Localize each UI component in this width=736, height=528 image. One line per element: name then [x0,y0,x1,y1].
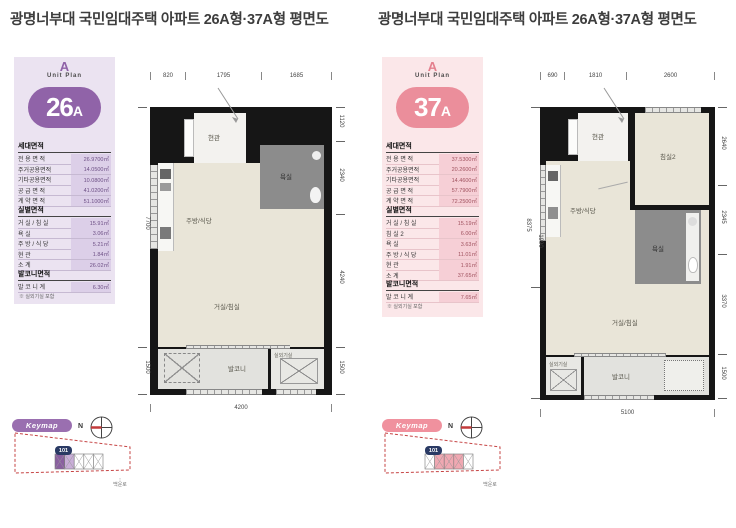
dim-left: 1990 [537,230,543,252]
label-ac: 실외기실 [274,352,292,359]
tick [718,254,727,255]
table-row: 공 급 면 적57.7900㎡ [386,186,479,197]
tick [336,394,345,395]
table-row: 주 방 / 식 당5.21㎡ [18,239,111,250]
tick [718,107,727,108]
window-bottom [584,395,654,400]
unit-number: 26 [46,92,73,123]
floorplan-37a: 현관 침실2 주방/식당 욕실 거실/침실 발코니 실외기실 [540,107,715,400]
escape-hatch-icon [164,353,200,383]
tick [531,287,540,288]
label-living: 거실/침실 [214,301,240,311]
tick [531,107,540,108]
label-bath: 욕실 [280,171,292,181]
table-header: 발코니면적 [18,269,111,281]
table-row: 거 실 / 침 실15.91㎡ [18,218,111,229]
table-row: 주거공용면적20.2600㎡ [386,165,479,176]
label-entrance: 현관 [592,131,604,141]
label-balcony: 발코니 [612,371,630,381]
table-row: 주거공용면적14.0500㎡ [18,165,111,176]
floorplan-26a: 현관 주방/식당 욕실 거실/침실 발코니 실외기실 [150,107,332,395]
unit-suffix: A [441,103,451,119]
table-header: 발코니면적 [386,279,479,291]
unit-info-panel-26a: A Unit Plan 26A 세대면적 전 용 면 적26.9700㎡ 주거공… [14,57,115,304]
dim-left: 8375 [525,214,531,236]
entrance-arrow-icon [212,86,248,128]
washbasin-icon [312,151,321,160]
page-title-right: 광명너부대 국민임대주택 아파트 26A형·37A형 평면도 [378,8,697,29]
dims-top-26a: 820 1795 1685 [150,72,332,81]
table-row: 주 방 / 식 당11.01㎡ [386,250,479,261]
dim-right: 2640 [720,132,726,154]
table-header: 실별면적 [18,205,111,217]
room-area-table: 실별면적 거 실 / 침 실15.19㎡ 침 실 26.00㎡ 욕 실3.63㎡… [386,205,479,281]
dim-left: 7700 [144,212,150,234]
table-row: 전 용 면 적37.5300㎡ [386,154,479,165]
window-left [150,165,158,249]
label-kitchen: 주방/식당 [570,205,596,215]
north-letter: N [78,423,83,430]
road-label: ↑ 백운로 [98,478,142,488]
dim-right: 1500 [338,356,344,378]
window-bottom [186,389,262,395]
unit-badge-26a: 26A [28,87,101,128]
label-balcony: 발코니 [228,363,246,373]
escape-hatch-icon [664,360,704,391]
block-badge: 101 [425,446,442,455]
label-bath: 욕실 [652,243,664,253]
table-row: 현 관1.84㎡ [18,250,111,261]
dim-bottom-37a: 5100 [540,409,715,418]
tick [531,398,540,399]
logo-a-icon: A [382,61,483,73]
sink-icon [548,207,558,219]
label-entrance: 현관 [208,132,220,142]
table-row: 기타공용면적14.4600㎡ [386,175,479,186]
tick [336,107,345,108]
area-note: ※ 실외기실 포함 [19,293,54,300]
unit-plan-logo: A Unit Plan [382,61,483,79]
tick [336,214,345,215]
dim-right: 2340 [338,164,344,186]
fridge-icon [160,227,171,239]
table-header: 세대면적 [386,141,479,153]
unit-suffix: A [73,103,83,119]
tick [336,347,345,348]
window-bottom-2 [276,389,316,395]
tick [718,185,727,186]
table-row: 거 실 / 침 실15.19㎡ [386,218,479,229]
dims-top-37a: 690 1810 2600 [540,72,715,81]
sink-icon [160,183,171,191]
balcony-area-table: 발코니면적 발 코 니 계6.30㎡ [18,269,111,293]
tick [138,394,147,395]
unit-badge-37a: 37A [396,87,469,128]
tick [718,398,727,399]
household-area-table: 세대면적 전 용 면 적26.9700㎡ 주거공용면적14.0500㎡ 기타공용… [18,141,111,207]
dim-bottom-26a: 4200 [150,404,332,413]
tick [336,141,345,142]
stove-icon [548,171,558,181]
logo-text: Unit Plan [382,73,483,79]
entrance-arrow-icon [598,86,634,128]
page: 광명너부대 국민임대주택 아파트 26A형·37A형 평면도 A Unit Pl… [0,0,736,528]
table-row: 발 코 니 계7.65㎡ [386,292,479,303]
dim-right: 1500 [720,362,726,384]
block-badge: 101 [55,446,72,455]
toilet-icon [310,187,321,203]
sitemap-right [382,430,532,502]
logo-text: Unit Plan [14,73,115,79]
road-label: ↑ 백운로 [468,478,512,488]
label-ac: 실외기실 [549,361,567,368]
dim-left: 1500 [144,356,150,378]
window-bedroom2 [645,107,701,113]
tick [138,107,147,108]
tick [138,347,147,348]
north-letter: N [448,423,453,430]
unit-number: 37 [414,92,441,123]
washbasin-icon [688,217,697,226]
room-area-table: 실별면적 거 실 / 침 실15.91㎡ 욕 실3.06㎡ 주 방 / 식 당5… [18,205,111,271]
household-area-table: 세대면적 전 용 면 적37.5300㎡ 주거공용면적20.2600㎡ 기타공용… [386,141,479,207]
table-row: 욕 실3.06㎡ [18,229,111,240]
table-row: 현 관1.91㎡ [386,260,479,271]
table-header: 실별면적 [386,205,479,217]
dim-right: 4240 [338,266,344,288]
entrance-door [568,119,578,155]
label-kitchen: 주방/식당 [186,215,212,225]
unit-plan-logo: A Unit Plan [14,61,115,79]
toilet-icon [688,257,698,273]
dim-right: 3370 [720,290,726,312]
label-living: 거실/침실 [612,317,638,327]
table-row: 발 코 니 계6.30㎡ [18,282,111,293]
balcony-area-table: 발코니면적 발 코 니 계7.65㎡ [386,279,479,303]
label-bedroom2: 침실2 [660,151,676,161]
table-header: 세대면적 [18,141,111,153]
ac-grate-icon [280,358,318,384]
dim-right: 1120 [338,110,344,132]
ac-grate-icon [550,369,577,391]
page-title-left: 광명너부대 국민임대주택 아파트 26A형·37A형 평면도 [10,8,329,29]
table-row: 전 용 면 적26.9700㎡ [18,154,111,165]
logo-a-icon: A [14,61,115,73]
area-note: ※ 실외기실 포함 [387,303,422,310]
table-row: 공 급 면 적41.0200㎡ [18,186,111,197]
table-row: 욕 실3.63㎡ [386,239,479,250]
table-row: 침 실 26.00㎡ [386,229,479,240]
table-row: 기타공용면적10.0800㎡ [18,175,111,186]
unit-info-panel-37a: A Unit Plan 37A 세대면적 전 용 면 적37.5300㎡ 주거공… [382,57,483,317]
tick [718,354,727,355]
dim-right: 2345 [720,206,726,228]
sitemap-left [12,430,162,502]
entrance-door [184,119,194,157]
stove-icon [160,169,171,179]
